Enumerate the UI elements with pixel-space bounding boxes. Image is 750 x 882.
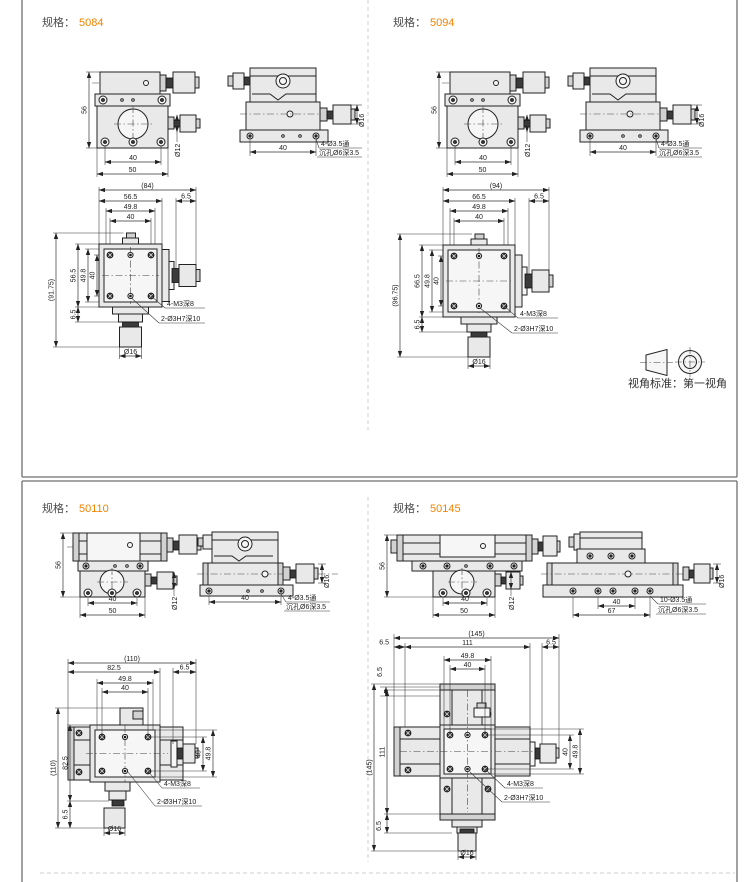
spec-heading-5094: 规格：5094	[393, 14, 454, 30]
front-view-0: 56Ø124050	[82, 72, 201, 177]
dim-label: 40	[434, 277, 441, 285]
spec-value: 50110	[79, 503, 109, 515]
dim-label: 4-M3深8	[164, 779, 191, 788]
dim-label: 56.5	[124, 194, 138, 201]
dim-label: 2-Ø3H7深10	[514, 324, 553, 333]
plan-view-50145: Ø16(145)1116.56.549.8406.5(145)1116.5404…	[367, 631, 585, 860]
dim-label: Ø12	[509, 597, 516, 610]
dim-label: (96.75)	[393, 284, 400, 306]
dim-label: 2-Ø3H7深10	[161, 314, 200, 323]
dim-label: 40	[479, 155, 487, 162]
dim-label: 66.5	[415, 274, 422, 288]
side-view-1: Ø16404-Ø3.5通沉孔Ø6深3.5	[568, 68, 706, 157]
dim-label: 111	[380, 747, 387, 758]
spec-label: 规格：	[42, 17, 75, 29]
dim-label: Ø16	[719, 575, 726, 588]
dim-label: 沉孔Ø6深3.5	[658, 605, 698, 614]
side-view-50145: Ø16406710-Ø3.5通沉孔Ø6深3.5	[541, 532, 726, 618]
spec-value: 50145	[430, 503, 461, 515]
drawing-canvas: 56Ø124050Ø16404-Ø3.5通沉孔Ø6深3.5(84)56.549.…	[0, 0, 750, 882]
dim-label: 40	[127, 214, 135, 221]
dim-label: 40	[613, 599, 621, 606]
dim-label: 49.8	[461, 653, 475, 660]
catalog-page: 56Ø124050Ø16404-Ø3.5通沉孔Ø6深3.5(84)56.549.…	[0, 0, 750, 882]
dim-label: 40	[464, 662, 472, 669]
dim-label: (145)	[468, 631, 484, 638]
first-angle-projection-symbol	[640, 347, 705, 377]
dim-label: 49.8	[472, 204, 486, 211]
dim-label: (84)	[141, 183, 153, 190]
spec-heading-50145: 规格：50145	[393, 500, 461, 516]
spec-value: 5094	[430, 17, 454, 29]
dim-label: 4-Ø3.5通	[661, 139, 689, 148]
dim-label: 2-Ø3H7深10	[504, 793, 543, 802]
dim-label: 4-Ø3.5通	[288, 593, 316, 602]
dim-label: 4-M3深8	[507, 779, 534, 788]
dim-label: 40	[475, 214, 483, 221]
dim-label: 6.5	[546, 640, 556, 647]
front-view-50110: 56Ø124050	[56, 533, 202, 618]
dim-label: 40	[241, 595, 249, 602]
dim-label: 沉孔Ø6深3.5	[659, 148, 699, 157]
dim-label: 49.8	[81, 269, 88, 283]
dim-label: 40	[461, 596, 469, 603]
dim-label: 56	[380, 562, 387, 570]
front-view-50145: 56Ø124050	[380, 535, 561, 618]
dim-label: 50	[479, 167, 487, 174]
plan-view-50110: Ø16(110)82.549.8406.5(110)82.56.54049.84…	[51, 656, 218, 836]
dim-label: 6.5	[63, 810, 70, 820]
plan-view-0: (84)56.549.8406.5(91.75)56.549.8406.5Ø16…	[49, 183, 206, 359]
dim-label: 4-M3深8	[520, 309, 547, 318]
dim-label: 6.5	[181, 194, 191, 201]
dim-label: 6.5	[71, 310, 78, 320]
projection-label: 视角标准：	[628, 378, 683, 390]
dim-label: 111	[462, 640, 473, 647]
dim-label: 82.5	[107, 665, 121, 672]
dim-label: 49.8	[573, 745, 580, 759]
dim-label: 50	[129, 167, 137, 174]
dim-label: Ø16	[472, 359, 485, 366]
dim-label: 56	[82, 106, 89, 114]
dim-label: 40	[619, 145, 627, 152]
dim-label: (145)	[367, 759, 374, 775]
side-view-0: Ø16404-Ø3.5通沉孔Ø6深3.5	[228, 68, 366, 157]
dim-label: (94)	[490, 183, 502, 190]
dim-label: 50	[109, 608, 117, 615]
dim-label: 49.8	[118, 676, 132, 683]
dim-label: 49.8	[425, 274, 432, 288]
dim-label: 56	[432, 106, 439, 114]
dim-label: 6.5	[376, 821, 383, 831]
dim-label: 56.5	[71, 269, 78, 283]
dim-label: 40	[279, 145, 287, 152]
dim-label: 沉孔Ø6深3.5	[319, 148, 359, 157]
dim-label: 50	[460, 608, 468, 615]
dim-label: Ø16	[359, 114, 366, 127]
projection-note: 视角标准：第一视角	[628, 375, 727, 391]
spec-heading-50110: 规格：50110	[42, 500, 109, 516]
dim-label: (110)	[51, 760, 58, 776]
dim-label: 6.5	[377, 667, 384, 677]
spec-label: 规格：	[393, 503, 426, 515]
dim-label: 40	[196, 750, 203, 758]
dim-label: Ø16	[108, 826, 121, 833]
dim-label: (110)	[124, 656, 140, 663]
dim-label: Ø16	[460, 850, 473, 857]
dim-label: 4-M3深8	[167, 299, 194, 308]
spec-label: 规格：	[42, 503, 75, 515]
dim-label: 49.8	[206, 747, 213, 761]
dim-label: 40	[90, 272, 97, 280]
dim-label: 67	[608, 608, 616, 615]
plan-view-1: (94)66.549.8406.5(96.75)66.549.8406.5Ø16…	[393, 183, 559, 369]
dim-label: 40	[129, 155, 137, 162]
dim-label: 沉孔Ø6深3.5	[286, 602, 326, 611]
dim-label: 4-Ø3.5通	[321, 139, 349, 148]
dim-label: 10-Ø3.5通	[660, 595, 692, 604]
projection-value: 第一视角	[683, 378, 727, 390]
dim-label: 40	[109, 596, 117, 603]
dim-label: 40	[121, 685, 129, 692]
spec-heading-5084: 规格：5084	[42, 14, 103, 30]
dim-label: Ø16	[124, 349, 137, 356]
dim-label: Ø16	[699, 114, 706, 127]
dim-label: Ø12	[175, 144, 182, 157]
dim-label: 49.8	[124, 204, 138, 211]
spec-value: 5084	[79, 17, 103, 29]
front-view-1: 56Ø124050	[432, 72, 551, 177]
side-view-50110: Ø16404-Ø3.5通沉孔Ø6深3.5	[197, 532, 338, 611]
dim-label: 82.5	[63, 756, 70, 770]
dim-label: 6.5	[415, 320, 422, 330]
dim-label: 2-Ø3H7深10	[157, 797, 196, 806]
dim-label: Ø16	[324, 575, 331, 588]
dim-label: 56	[56, 561, 63, 569]
dim-label: Ø12	[525, 144, 532, 157]
dim-label: (91.75)	[49, 279, 56, 301]
spec-label: 规格：	[393, 17, 426, 29]
dim-label: 40	[563, 748, 570, 756]
dim-label: 6.5	[379, 640, 389, 647]
dim-label: 6.5	[534, 194, 544, 201]
dim-label: 66.5	[472, 194, 486, 201]
dim-label: 6.5	[180, 665, 190, 672]
dim-label: Ø12	[172, 597, 179, 610]
